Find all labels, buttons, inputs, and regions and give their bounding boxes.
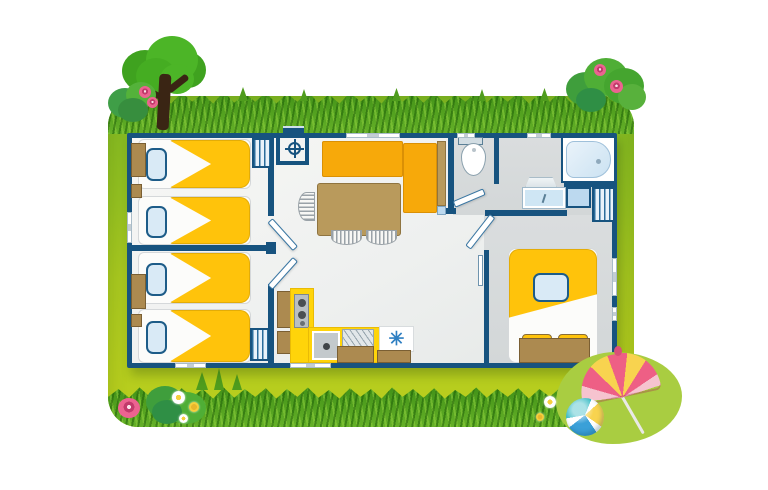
bedroom-2-door — [267, 257, 298, 290]
bathtub-basin — [566, 141, 611, 178]
burner — [298, 299, 306, 307]
grass-tuft — [300, 89, 308, 101]
bedroom-wardrobe — [250, 328, 270, 361]
bench-end-cushion — [437, 206, 446, 215]
bed-pillow — [146, 263, 167, 296]
mirror — [525, 177, 557, 188]
shower-tray — [566, 187, 591, 208]
window — [527, 133, 551, 138]
flush-button — [472, 148, 476, 152]
sink-drain — [323, 343, 330, 350]
window — [457, 133, 475, 138]
bush-leaf — [118, 98, 148, 122]
grass-top-band — [108, 96, 634, 134]
wall-segment — [485, 210, 567, 216]
kitchen-cabinet — [277, 331, 291, 354]
washbasin — [523, 188, 565, 208]
bed-pillow — [146, 148, 167, 181]
kitchen-sink — [312, 331, 340, 360]
dining-chair — [331, 230, 362, 245]
daisy-flower — [544, 396, 556, 408]
beach-ball — [566, 398, 604, 436]
sliding-door — [478, 255, 483, 286]
bush-leaf — [576, 88, 606, 112]
window — [346, 133, 400, 138]
double-bed — [508, 248, 598, 363]
wall-segment — [446, 208, 456, 214]
single-bed — [138, 196, 251, 245]
single-bed — [138, 309, 251, 363]
grass-tuft — [478, 89, 486, 101]
bed-blanket — [169, 310, 250, 362]
single-bed — [138, 252, 251, 304]
pink-flower — [610, 80, 623, 93]
shelf — [131, 184, 142, 198]
nightstand — [131, 274, 146, 309]
fridge-snowflake-icon: ✳ — [380, 327, 413, 351]
window — [612, 258, 617, 296]
entry-wardrobe — [252, 138, 272, 168]
burner — [300, 321, 305, 326]
illustration-canvas: ✳ — [0, 0, 768, 490]
cooktop — [294, 294, 309, 328]
single-bed — [138, 139, 251, 189]
kitchen-cabinet — [377, 350, 411, 363]
bathroom-wardrobe — [592, 187, 615, 222]
burner — [298, 311, 306, 319]
bed-blanket — [169, 253, 250, 303]
shelf — [131, 314, 142, 327]
wall-segment — [266, 242, 276, 254]
dining-chair — [298, 192, 315, 221]
faucet — [542, 194, 547, 203]
window — [127, 212, 132, 243]
corner-bench-seat — [322, 141, 403, 177]
daisy-flower — [179, 414, 188, 423]
grass-tuft — [238, 87, 248, 101]
kitchen-cabinet — [277, 291, 291, 328]
pink-flower — [118, 398, 140, 418]
pink-flower — [594, 64, 606, 76]
water-heater-closet — [276, 138, 309, 165]
daisy-flower — [172, 391, 185, 404]
foot-bench — [519, 338, 590, 363]
bathtub — [561, 136, 616, 183]
entry-step — [283, 126, 304, 138]
bed-blanket — [169, 197, 250, 244]
floor-plan: ✳ — [127, 133, 617, 368]
window — [290, 363, 331, 368]
fridge: ✳ — [380, 327, 413, 351]
bed-pillow — [533, 273, 569, 302]
wall-segment — [132, 245, 273, 251]
dining-chair — [366, 230, 397, 245]
dining-table — [317, 183, 401, 236]
grass-tuft — [392, 88, 401, 101]
daisy-flower — [536, 413, 544, 421]
daisy-flower — [189, 402, 199, 412]
water-heater-icon — [288, 142, 301, 155]
bed-pillow — [146, 206, 167, 238]
window — [612, 307, 617, 321]
nightstand — [131, 143, 146, 177]
window — [175, 363, 206, 368]
pink-flower — [139, 86, 151, 98]
umbrella-tip — [614, 346, 622, 356]
pink-flower — [147, 97, 158, 108]
corner-bench-seat — [403, 143, 437, 213]
bed-pillow — [146, 321, 167, 354]
bed-blanket — [169, 140, 250, 188]
bathtub-drain — [596, 159, 601, 164]
kitchen-cabinet — [337, 346, 374, 363]
wall-segment — [494, 138, 499, 184]
wall-segment — [484, 250, 489, 363]
grass-tuft — [540, 88, 549, 101]
bench-side-panel — [437, 141, 446, 206]
